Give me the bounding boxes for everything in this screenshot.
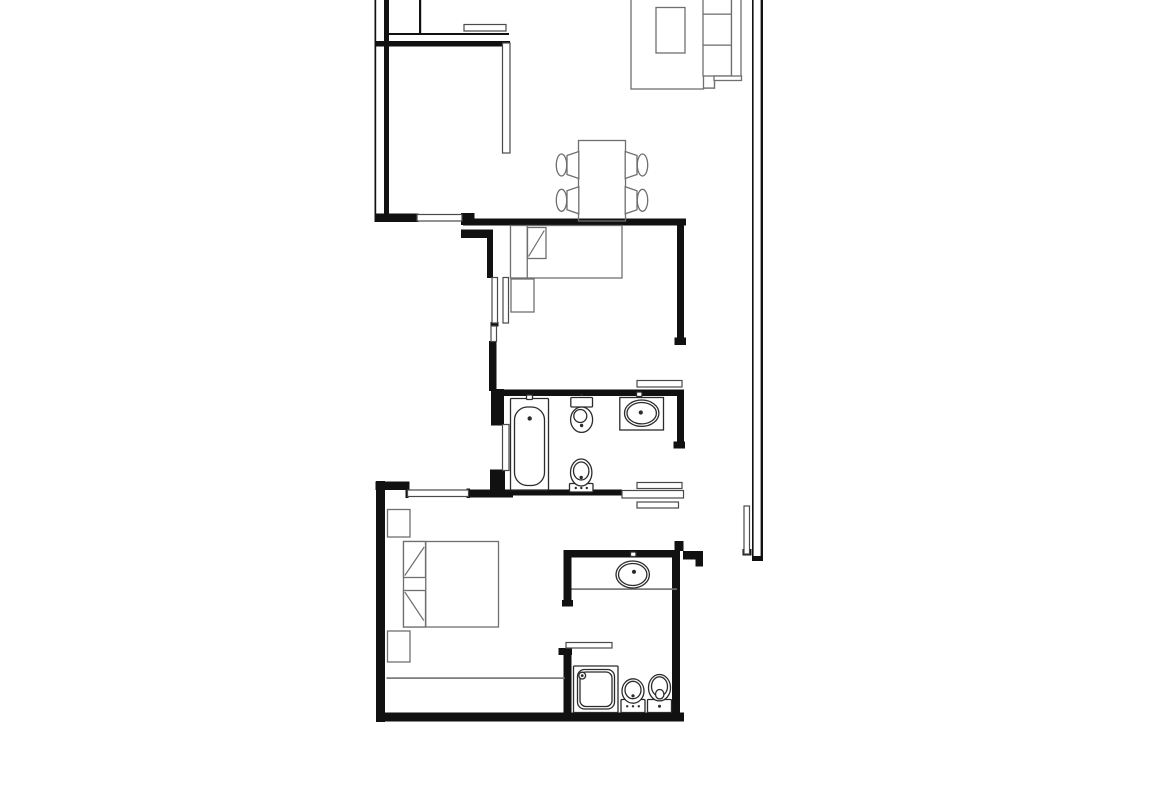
door-leaf-bath2: [566, 643, 612, 649]
chair-seat-bottom-left: [567, 187, 579, 214]
right-wall-inner-line: [752, 0, 754, 557]
bathtub-tap: [527, 395, 533, 400]
sink2-faucet-dot: [632, 570, 636, 574]
toilet2-base-dot-1: [626, 705, 628, 707]
sink2-basin-inner: [619, 564, 647, 586]
bath2-east-wall: [672, 550, 680, 721]
sink1-tap: [637, 392, 643, 397]
sink1-faucet-dot: [639, 410, 643, 414]
bed-double-headboard-line: [425, 542, 426, 628]
window-lightwell-a: [492, 278, 498, 324]
chair-back-bottom-left: [556, 189, 566, 211]
chair-back-top-right: [637, 154, 647, 176]
bath1-east-wall-cap: [674, 442, 686, 449]
living-south-wall: [375, 214, 419, 223]
bath1-east-wall: [677, 390, 684, 443]
sofa-seat-column: [703, 0, 732, 76]
door-leaf-corridor-b: [637, 502, 679, 508]
sink2-tap: [631, 552, 637, 557]
floor-plan-drawing: [0, 0, 1170, 785]
bidet2-drain: [656, 690, 664, 699]
sofa-cushion-divider-1: [703, 14, 732, 15]
chair-back-top-left: [556, 154, 566, 176]
bedroom1-east-wall-cap: [675, 338, 687, 346]
toilet1-dot: [580, 424, 583, 427]
floor-plan-canvas: [0, 0, 1170, 785]
chair-seat-bottom-right: [625, 187, 637, 214]
bedroom1-east-wall: [677, 219, 684, 338]
kitchen-wall-thin-line: [385, 33, 509, 35]
south-wall: [376, 713, 684, 722]
lightwell-wall-upper: [487, 238, 493, 278]
window-lightwell-c: [491, 326, 497, 342]
vanity2-front-edge: [572, 588, 678, 590]
shower-head-dot: [581, 674, 584, 677]
bidet1-base-dot-2: [580, 487, 582, 489]
left-wall-inner: [384, 0, 389, 216]
window-bedroom2: [408, 490, 469, 497]
sofa-backrest: [732, 0, 742, 80]
chair-seat-top-right: [625, 152, 637, 179]
bidet1-dot: [580, 476, 583, 479]
bath2-west-wall-lower: [564, 650, 572, 721]
bath2-west-cap-1: [562, 600, 573, 607]
toilet1-cistern-dot: [581, 394, 583, 396]
passage-wall-bar: [622, 491, 684, 499]
bedroom2-north-wall-b: [468, 490, 514, 498]
bedroom2-west-wall: [376, 481, 385, 722]
door-leaf-corridor-a: [637, 483, 682, 489]
toilet2-base-dot-3: [638, 705, 640, 707]
window-living: [417, 215, 462, 222]
left-wall-outer-line: [375, 0, 377, 221]
toilet1-flush: [574, 410, 587, 423]
bidet2-base-dot: [658, 705, 661, 708]
sofa-coffee-table: [656, 8, 685, 54]
lightwell-stub: [461, 230, 493, 239]
bath2-west-wall-upper: [564, 550, 572, 603]
window-lightwell-b: [503, 278, 509, 324]
lightwell-wall-lower: [489, 341, 497, 391]
window-bath1: [503, 425, 510, 471]
sofa-cushion-divider-2: [703, 45, 732, 46]
toilet1-cistern: [571, 398, 593, 408]
bathtub-faucet-dot: [528, 416, 532, 420]
bath1-north-wall: [491, 390, 684, 397]
kitchen-south-wall: [375, 41, 511, 47]
kitchen-divider-line: [419, 0, 421, 34]
chair-back-bottom-right: [637, 189, 647, 211]
bidet1-base-dot-3: [586, 487, 588, 489]
door-leaf-bath1-top: [637, 381, 682, 388]
right-wall-outer-line: [761, 0, 763, 561]
wardrobe-line: [387, 677, 566, 679]
nightstand-bedroom2-bottom: [388, 631, 411, 662]
bidet1-base-dot-1: [575, 487, 577, 489]
sofa-step-h: [703, 87, 715, 88]
nightstand-bedroom2-top: [388, 510, 411, 538]
bath2-north-tab: [675, 541, 684, 551]
right-wall-cap: [752, 556, 763, 561]
kitchen-counter: [464, 25, 506, 32]
sofa-armrest: [714, 76, 742, 81]
bath1-sw-chunk: [490, 470, 505, 491]
kitchen-partition: [503, 43, 511, 153]
bedroom1-north-wall: [463, 219, 686, 226]
toilet2-dot: [631, 694, 634, 697]
dining-table: [579, 141, 626, 222]
toilet2-base-dot-2: [632, 705, 634, 707]
bedroom2-north-wall-a: [376, 482, 410, 491]
bed-single-headboard-line: [527, 226, 528, 279]
bath2-north-wall: [564, 550, 677, 558]
sofa-step-v: [714, 80, 715, 89]
entry-door-leaf: [744, 506, 750, 554]
chair-seat-top-left: [567, 152, 579, 179]
nightstand-bedroom1: [511, 279, 534, 312]
entry-wall-cap: [696, 551, 704, 567]
